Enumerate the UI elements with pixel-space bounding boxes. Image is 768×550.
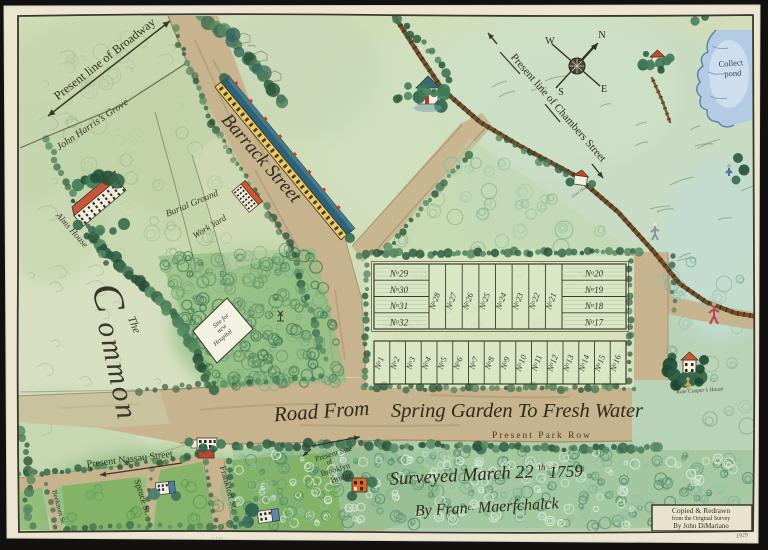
svg-text:No32: No32: [389, 317, 409, 327]
svg-text:No31: No31: [389, 301, 408, 311]
svg-text:E: E: [601, 84, 607, 95]
svg-text:Present Park Row: Present Park Row: [492, 431, 592, 441]
svg-text:By John DiMariano: By John DiMariano: [673, 522, 729, 530]
svg-text:No29: No29: [389, 269, 409, 279]
svg-text:No19: No19: [584, 285, 604, 295]
svg-text:from the Original Survey: from the Original Survey: [672, 515, 731, 522]
svg-text:1759: 1759: [548, 461, 583, 482]
svg-text:No30: No30: [389, 285, 409, 295]
svg-text:th: th: [538, 462, 546, 472]
svg-text:No20: No20: [584, 269, 604, 279]
svg-text:Spring Garden To Fresh Water: Spring Garden To Fresh Water: [391, 400, 644, 422]
svg-text:N: N: [598, 30, 605, 41]
svg-text:pond: pond: [724, 67, 742, 78]
svg-text:No18: No18: [584, 301, 604, 311]
svg-text:No17: No17: [584, 317, 604, 327]
svg-text:W: W: [545, 36, 555, 47]
svg-text:~ t n .: ~ t n .: [211, 536, 225, 542]
svg-text:S: S: [558, 87, 564, 98]
svg-text:Copied & Redrawn: Copied & Redrawn: [672, 506, 731, 515]
